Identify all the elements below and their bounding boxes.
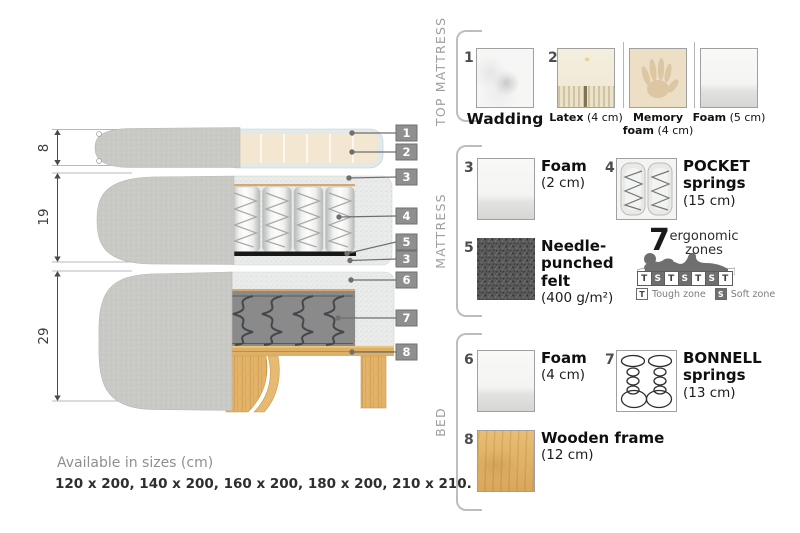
bonnell-springs-label: BONNELL springs (13 cm) [683, 350, 763, 401]
memory-foam-image [629, 48, 687, 108]
tough-zone-label: Tough zone [652, 289, 706, 300]
bed-fabric [99, 272, 232, 411]
top-mattress-section-label: TOP MATTRESS [433, 26, 449, 126]
soft-zone-key: S [715, 288, 727, 300]
wooden-frame [226, 346, 394, 412]
foam-4cm-label: Foam (4 cm) [541, 350, 613, 384]
callout-badge-1: 1 [402, 126, 410, 140]
foam-2cm-image [477, 158, 535, 220]
callout-badge-3b: 3 [402, 252, 410, 266]
mattress-infographic: 8 19 29 [0, 0, 800, 533]
mattress-fabric [97, 176, 234, 265]
zones-legend: T Tough zone S Soft zone [636, 288, 775, 300]
latex-image [557, 48, 615, 108]
item-number-6: 6 [464, 352, 474, 368]
item-number-8: 8 [464, 432, 474, 448]
latex-label: Latex (4 cm) [546, 112, 626, 125]
pocket-springs-icon [617, 159, 676, 219]
top-mattress-cutaway [224, 129, 383, 168]
callout-badge-5: 5 [402, 235, 410, 249]
felt-layer [229, 252, 356, 257]
soft-zone-label: Soft zone [731, 289, 775, 300]
dim-top-mattress: 8 [36, 144, 52, 153]
wadding-label: Wadding [458, 110, 552, 128]
foam-5cm-label: Foam (5 cm) [692, 112, 766, 125]
bonnell-springs-image [616, 350, 677, 412]
wooden-frame-image [477, 430, 535, 492]
bed-cutaway [226, 272, 394, 412]
top-mattress-fabric [95, 128, 240, 168]
wooden-frame-label: Wooden frame (12 cm) [541, 430, 671, 464]
zone-box-tough: T [691, 271, 706, 286]
item-number-7: 7 [605, 352, 615, 368]
zone-box-tough: T [718, 271, 733, 286]
bonnell-springs-icon [617, 351, 676, 411]
item-number-5: 5 [464, 240, 474, 256]
divider [623, 42, 624, 108]
memory-foam-label: Memory foam (4 cm) [621, 112, 695, 138]
zone-box-tough: T [664, 271, 679, 286]
zone-box-tough: T [637, 271, 652, 286]
item-number-1: 1 [464, 50, 474, 66]
callout-badge-8: 8 [402, 345, 410, 359]
callout-badge-6: 6 [402, 273, 410, 287]
pocket-springs-image [616, 158, 677, 220]
foam-5cm-image [700, 48, 758, 108]
dim-bed: 29 [36, 327, 52, 344]
zone-box-soft: S [651, 271, 666, 286]
felt-texture [477, 238, 535, 300]
callout-badge-7: 7 [402, 311, 410, 325]
zone-box-soft: S [705, 271, 720, 286]
sizes-title: Available in sizes (cm) [57, 455, 213, 471]
sizes-list: 120 x 200, 140 x 200, 160 x 200, 180 x 2… [55, 476, 472, 492]
item-number-4: 4 [605, 160, 615, 176]
dim-mattress: 19 [36, 208, 52, 225]
pocket-springs-label: POCKET springs (15 cm) [683, 158, 763, 209]
dimension-arrows [54, 130, 60, 402]
wadding-image [476, 48, 534, 108]
needle-punched-felt-label: Needle-punched felt (400 g/m²) [541, 238, 619, 307]
callout-badge-2: 2 [402, 145, 410, 159]
tough-zone-key: T [636, 288, 648, 300]
mattress-section-label: MATTRESS [433, 181, 449, 281]
zone-box-soft: S [678, 271, 693, 286]
bed-cross-section-diagram: 8 19 29 [0, 0, 430, 533]
callout-badge-4: 4 [402, 209, 410, 223]
item-number-3: 3 [464, 160, 474, 176]
needle-punched-felt-image [477, 238, 535, 300]
ergonomic-zones-row: T S T S T S T [638, 271, 733, 286]
hand-imprint-icon [630, 49, 686, 107]
bed-section-label: BED [433, 372, 449, 472]
foam-4cm-image [477, 350, 535, 412]
callout-badge-3: 3 [402, 170, 410, 184]
foam-2cm-label: Foam (2 cm) [541, 158, 613, 192]
mattress-cutaway [226, 176, 392, 265]
divider [694, 42, 695, 108]
